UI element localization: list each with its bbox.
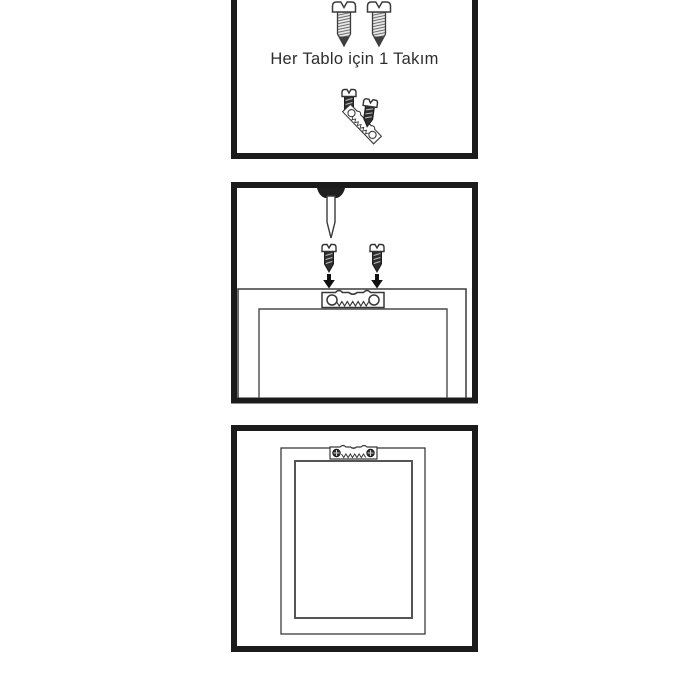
instruction-diagram bbox=[0, 0, 700, 700]
frame-back-inner-outline bbox=[259, 309, 447, 398]
small-screw-icon bbox=[370, 245, 384, 273]
kit-caption: Her Tablo için 1 Takım bbox=[231, 50, 478, 69]
down-arrow-icon bbox=[371, 274, 383, 289]
panel-kit-contents bbox=[234, 0, 475, 156]
large-screw-icon bbox=[368, 2, 391, 46]
sawtooth-hanger-icon bbox=[343, 103, 383, 144]
bradawl-icon bbox=[317, 188, 345, 238]
panel-installed-result bbox=[234, 428, 475, 649]
sawtooth-hanger-icon bbox=[322, 291, 384, 308]
instruction-sheet: Her Tablo için 1 Takım bbox=[0, 0, 700, 700]
small-screw-icon bbox=[322, 245, 336, 273]
frame-back-inner-outline bbox=[295, 461, 412, 618]
panel-installation bbox=[234, 185, 475, 401]
large-screw-icon bbox=[333, 2, 356, 46]
panel-1-border bbox=[234, 0, 475, 156]
panel-2-border bbox=[234, 185, 475, 401]
down-arrow-icon bbox=[323, 274, 335, 289]
